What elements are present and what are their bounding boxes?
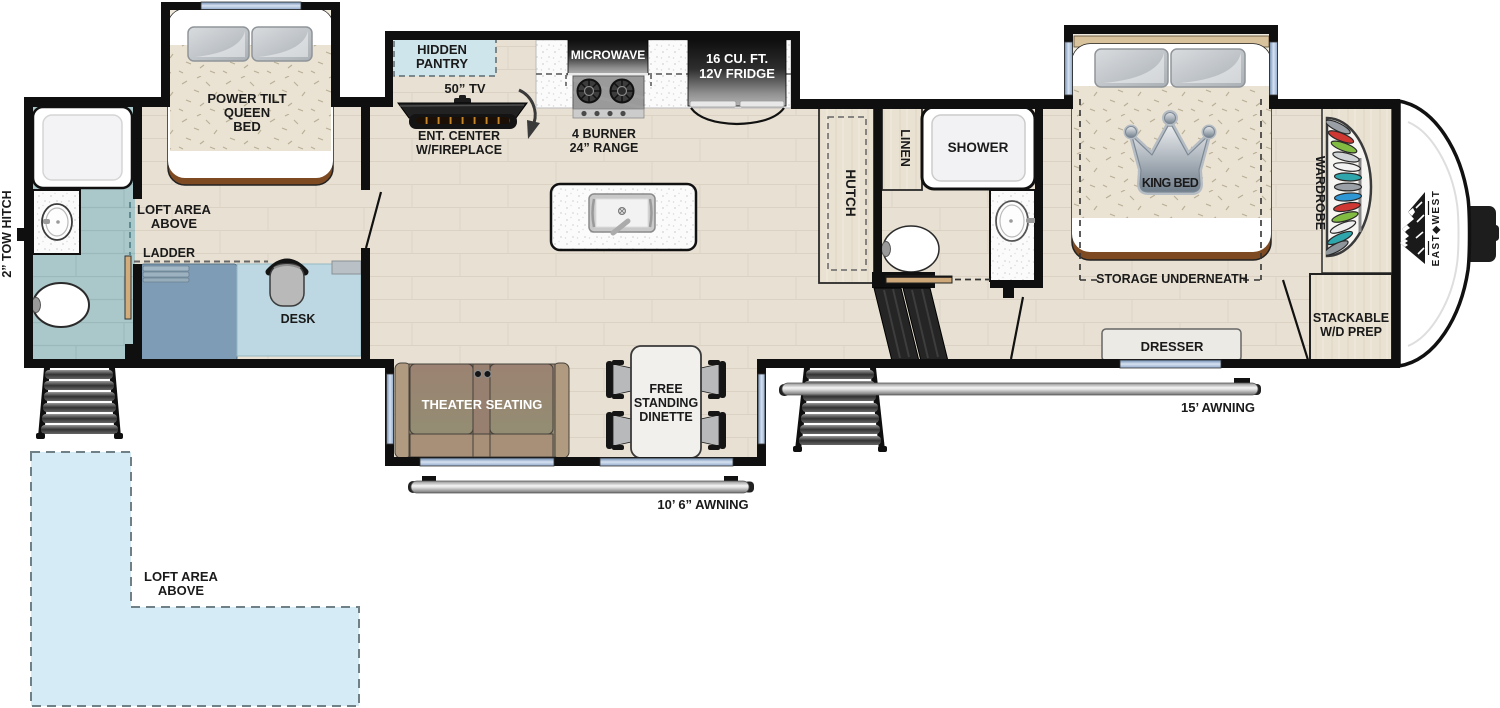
svg-text:WARDROBE: WARDROBE — [1313, 156, 1327, 230]
svg-text:LOFT AREA: LOFT AREA — [144, 569, 219, 584]
svg-text:BED: BED — [233, 119, 260, 134]
svg-text:MICROWAVE: MICROWAVE — [571, 48, 645, 62]
svg-text:EAST◆WEST: EAST◆WEST — [1431, 190, 1442, 267]
svg-text:DINETTE: DINETTE — [639, 410, 692, 424]
svg-text:W/D PREP: W/D PREP — [1320, 325, 1382, 339]
svg-text:10’ 6” AWNING: 10’ 6” AWNING — [657, 497, 748, 512]
svg-text:15’ AWNING: 15’ AWNING — [1181, 400, 1255, 415]
svg-text:ABOVE: ABOVE — [151, 216, 198, 231]
svg-text:HIDDEN: HIDDEN — [417, 42, 467, 57]
svg-text:QUEEN: QUEEN — [224, 105, 270, 120]
svg-text:PANTRY: PANTRY — [416, 56, 468, 71]
svg-text:LADDER: LADDER — [143, 246, 195, 260]
svg-text:W/FIREPLACE: W/FIREPLACE — [416, 143, 502, 157]
svg-text:12V FRIDGE: 12V FRIDGE — [699, 66, 775, 81]
svg-text:POWER TILT: POWER TILT — [207, 91, 286, 106]
svg-text:STACKABLE: STACKABLE — [1313, 311, 1389, 325]
svg-text:2” TOW HITCH: 2” TOW HITCH — [0, 190, 14, 277]
svg-text:ABOVE: ABOVE — [158, 583, 205, 598]
svg-text:DESK: DESK — [281, 312, 316, 326]
svg-text:SHOWER: SHOWER — [948, 140, 1009, 155]
svg-text:DRESSER: DRESSER — [1141, 339, 1204, 354]
svg-text:LINEN: LINEN — [898, 129, 912, 167]
svg-text:FREE: FREE — [649, 382, 682, 396]
svg-text:STANDING: STANDING — [634, 396, 698, 410]
svg-text:KING BED: KING BED — [1142, 176, 1199, 190]
svg-text:4 BURNER: 4 BURNER — [572, 127, 636, 141]
svg-text:HUTCH: HUTCH — [843, 169, 858, 216]
svg-text:LOFT AREA: LOFT AREA — [137, 202, 212, 217]
svg-text:16 CU. FT.: 16 CU. FT. — [706, 51, 768, 66]
svg-text:STORAGE UNDERNEATH: STORAGE UNDERNEATH — [1096, 272, 1248, 286]
svg-text:THEATER SEATING: THEATER SEATING — [422, 397, 543, 412]
svg-text:ENT. CENTER: ENT. CENTER — [418, 129, 500, 143]
svg-text:24” RANGE: 24” RANGE — [570, 141, 639, 155]
svg-text:50” TV: 50” TV — [444, 81, 486, 96]
